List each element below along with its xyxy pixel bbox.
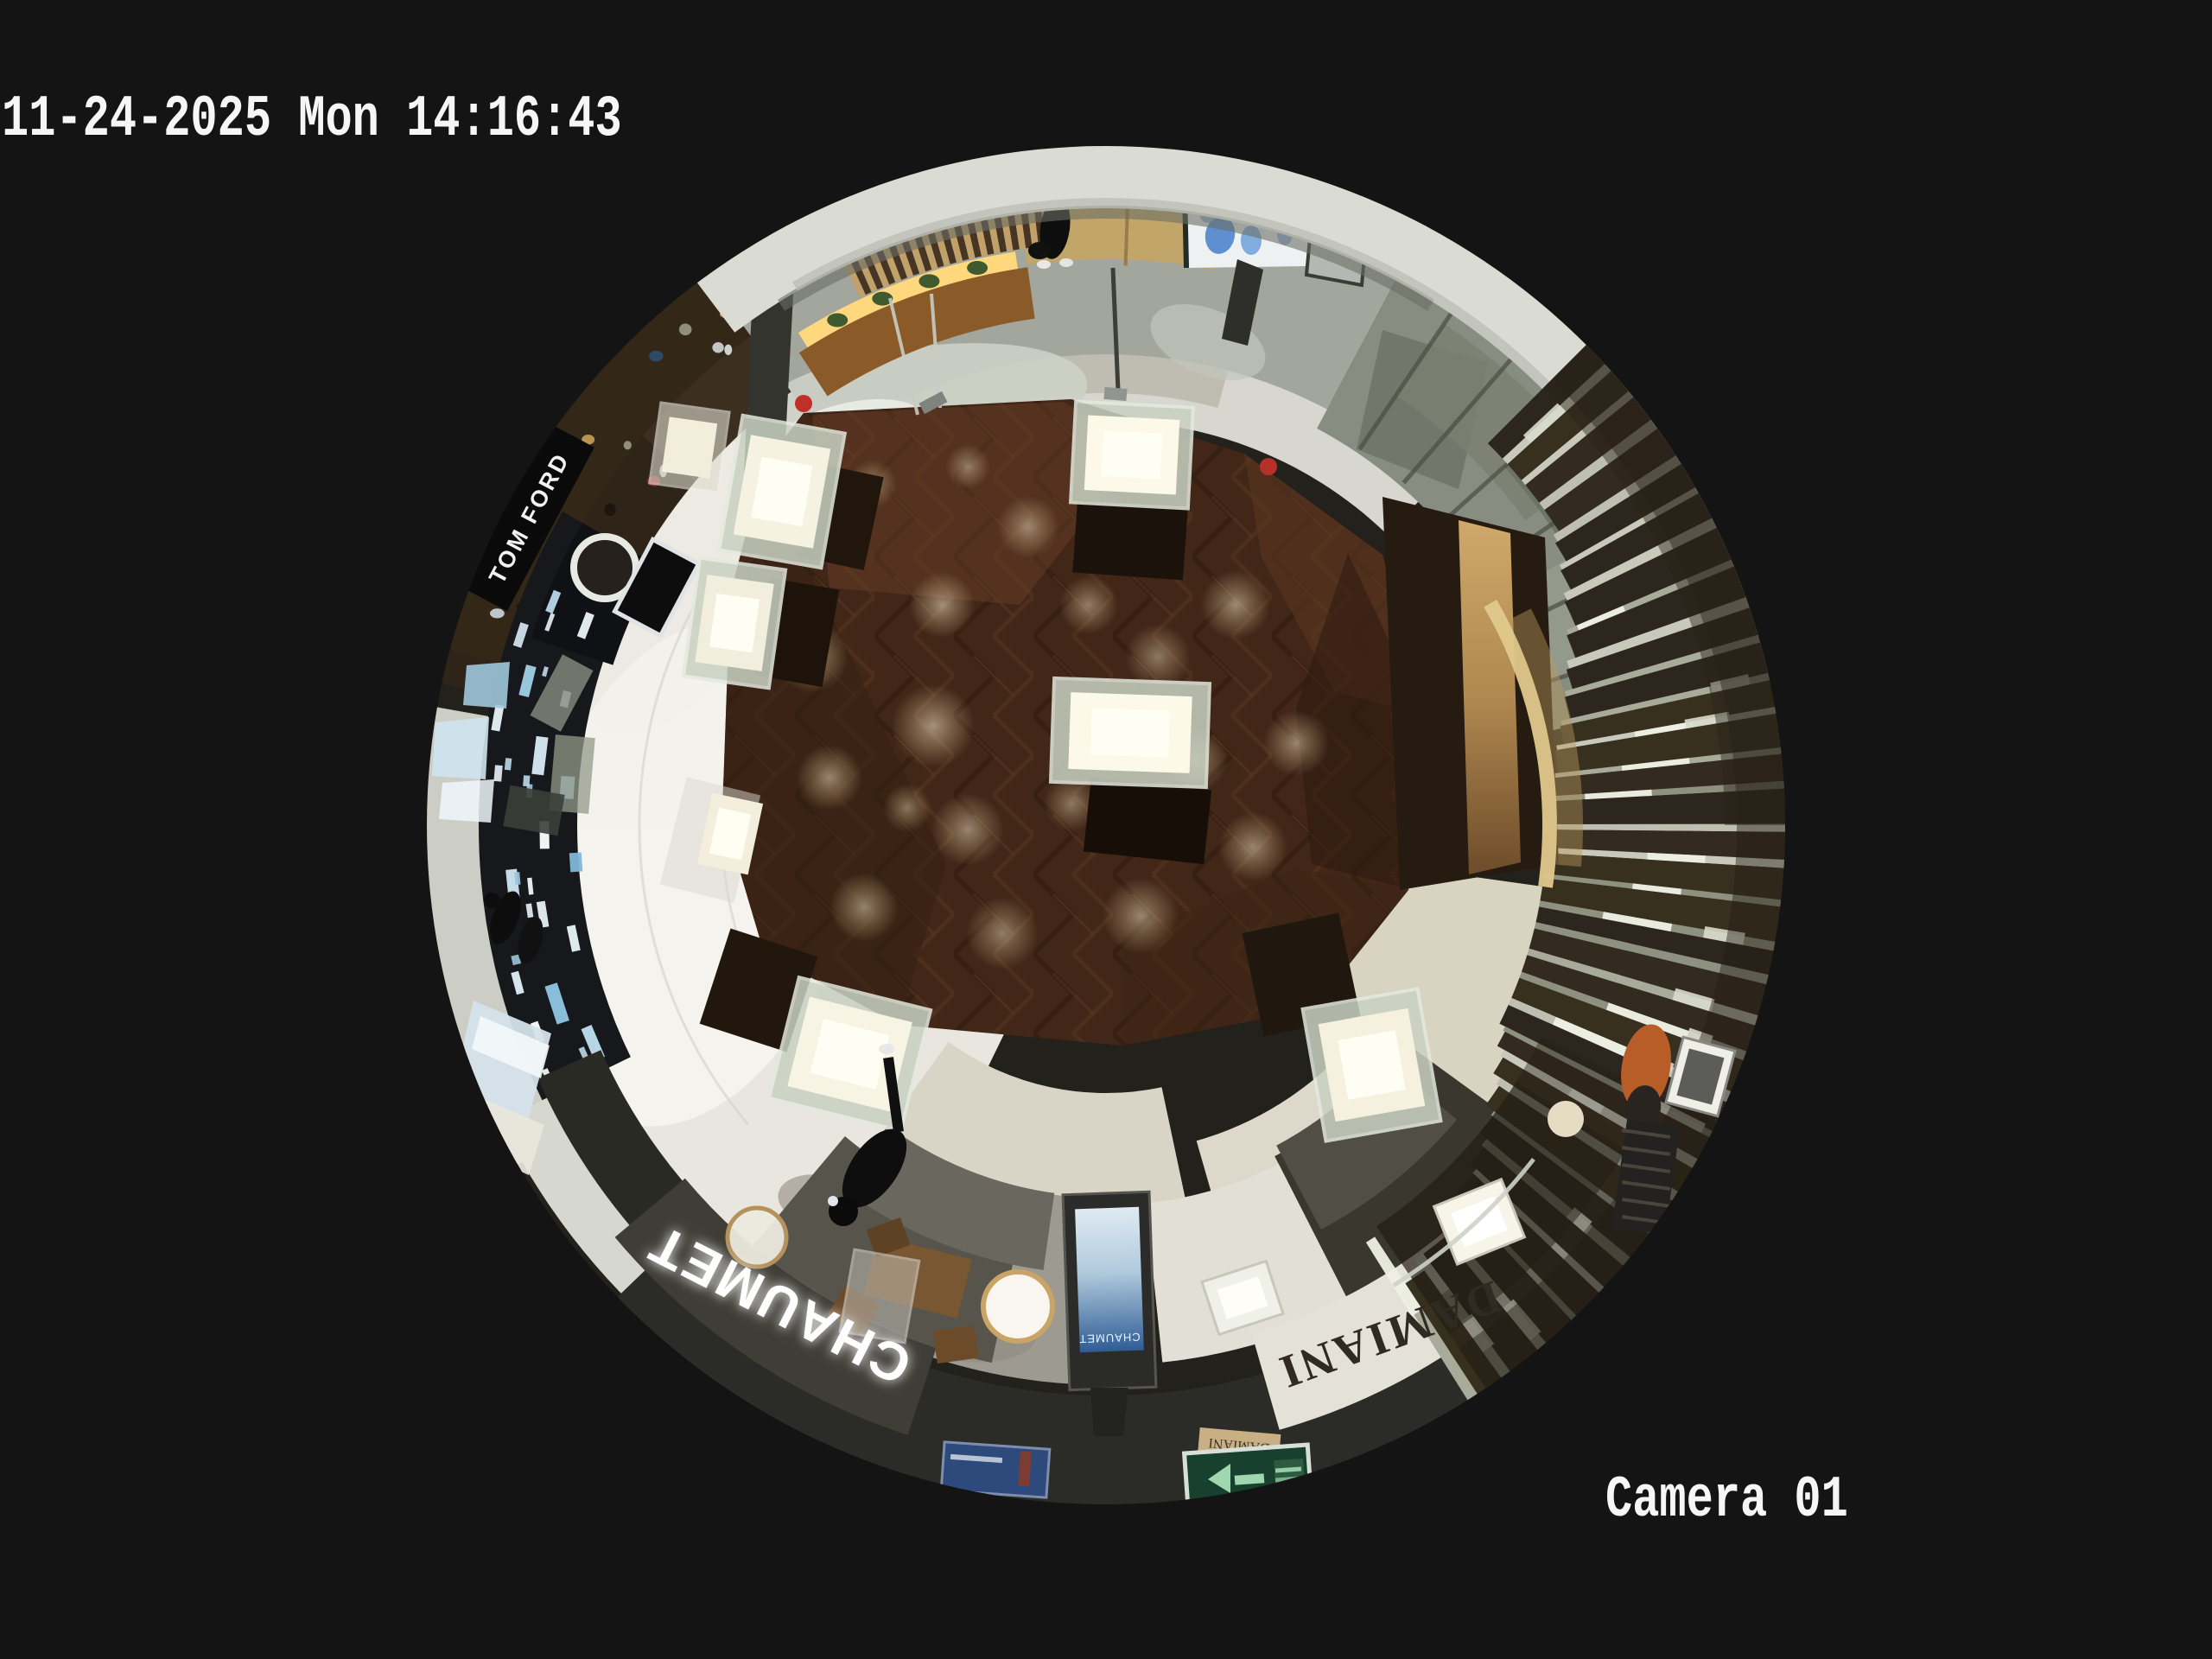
svg-text:CHAUMET: CHAUMET xyxy=(1078,1331,1141,1345)
